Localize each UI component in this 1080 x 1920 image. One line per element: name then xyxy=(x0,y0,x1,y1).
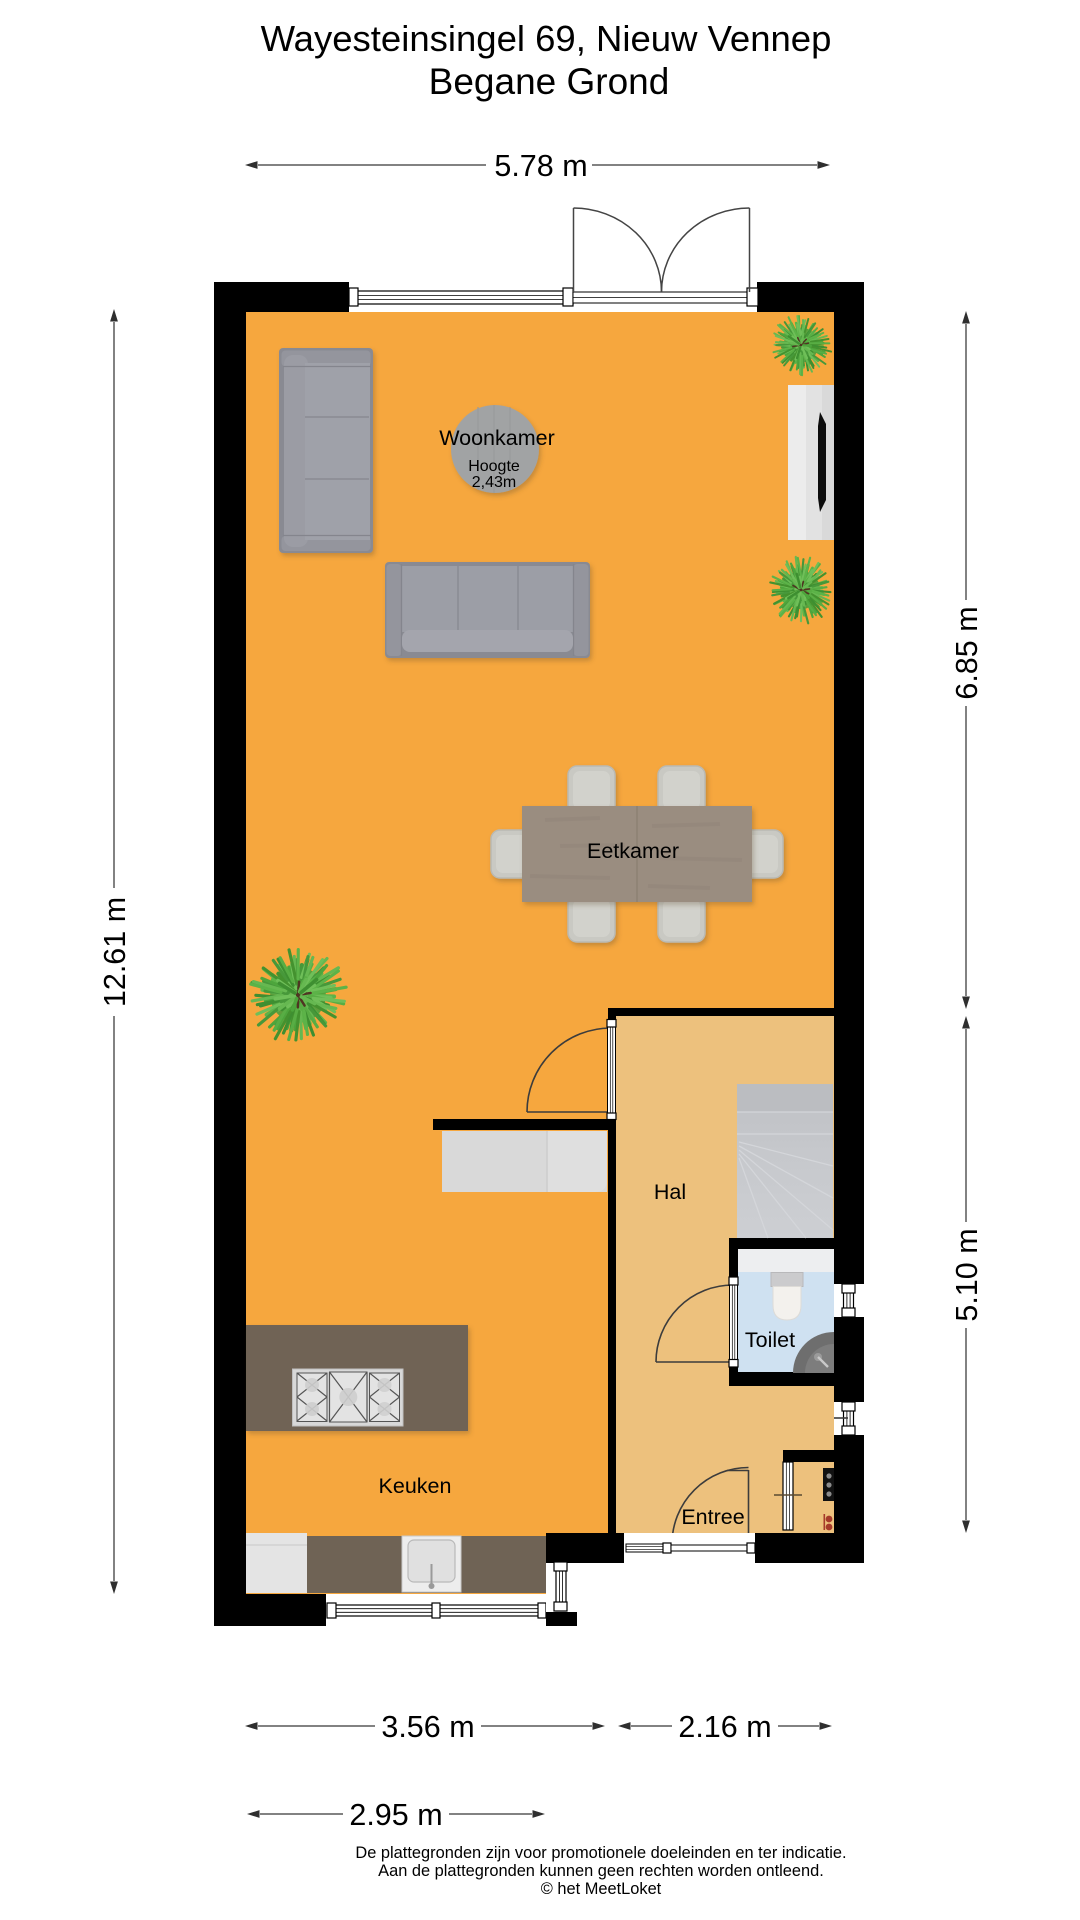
svg-text:Aan de plattegronden kunnen ge: Aan de plattegronden kunnen geen rechten… xyxy=(378,1862,824,1880)
svg-text:2.16 m: 2.16 m xyxy=(678,1710,771,1744)
svg-text:Hoogte: Hoogte xyxy=(468,458,520,475)
svg-text:Begane Grond: Begane Grond xyxy=(429,61,670,102)
svg-text:Woonkamer: Woonkamer xyxy=(439,426,555,450)
svg-text:Keuken: Keuken xyxy=(379,1474,452,1498)
svg-text:2,43m: 2,43m xyxy=(472,474,516,491)
svg-text:6.85 m: 6.85 m xyxy=(950,606,984,699)
svg-text:12.61 m: 12.61 m xyxy=(98,897,132,1007)
svg-text:2.95 m: 2.95 m xyxy=(349,1798,442,1832)
svg-text:De plattegronden zijn voor pro: De plattegronden zijn voor promotionele … xyxy=(355,1844,846,1862)
svg-text:3.56 m: 3.56 m xyxy=(381,1710,474,1744)
svg-text:5.10 m: 5.10 m xyxy=(950,1228,984,1321)
svg-text:Eetkamer: Eetkamer xyxy=(587,839,679,863)
svg-text:5.78 m: 5.78 m xyxy=(494,149,587,183)
svg-text:Entree: Entree xyxy=(681,1505,744,1529)
svg-text:Wayesteinsingel 69, Nieuw Venn: Wayesteinsingel 69, Nieuw Vennep xyxy=(261,18,832,59)
svg-text:© het MeetLoket: © het MeetLoket xyxy=(541,1880,662,1898)
svg-text:Hal: Hal xyxy=(654,1180,686,1204)
svg-text:Toilet: Toilet xyxy=(745,1328,795,1352)
